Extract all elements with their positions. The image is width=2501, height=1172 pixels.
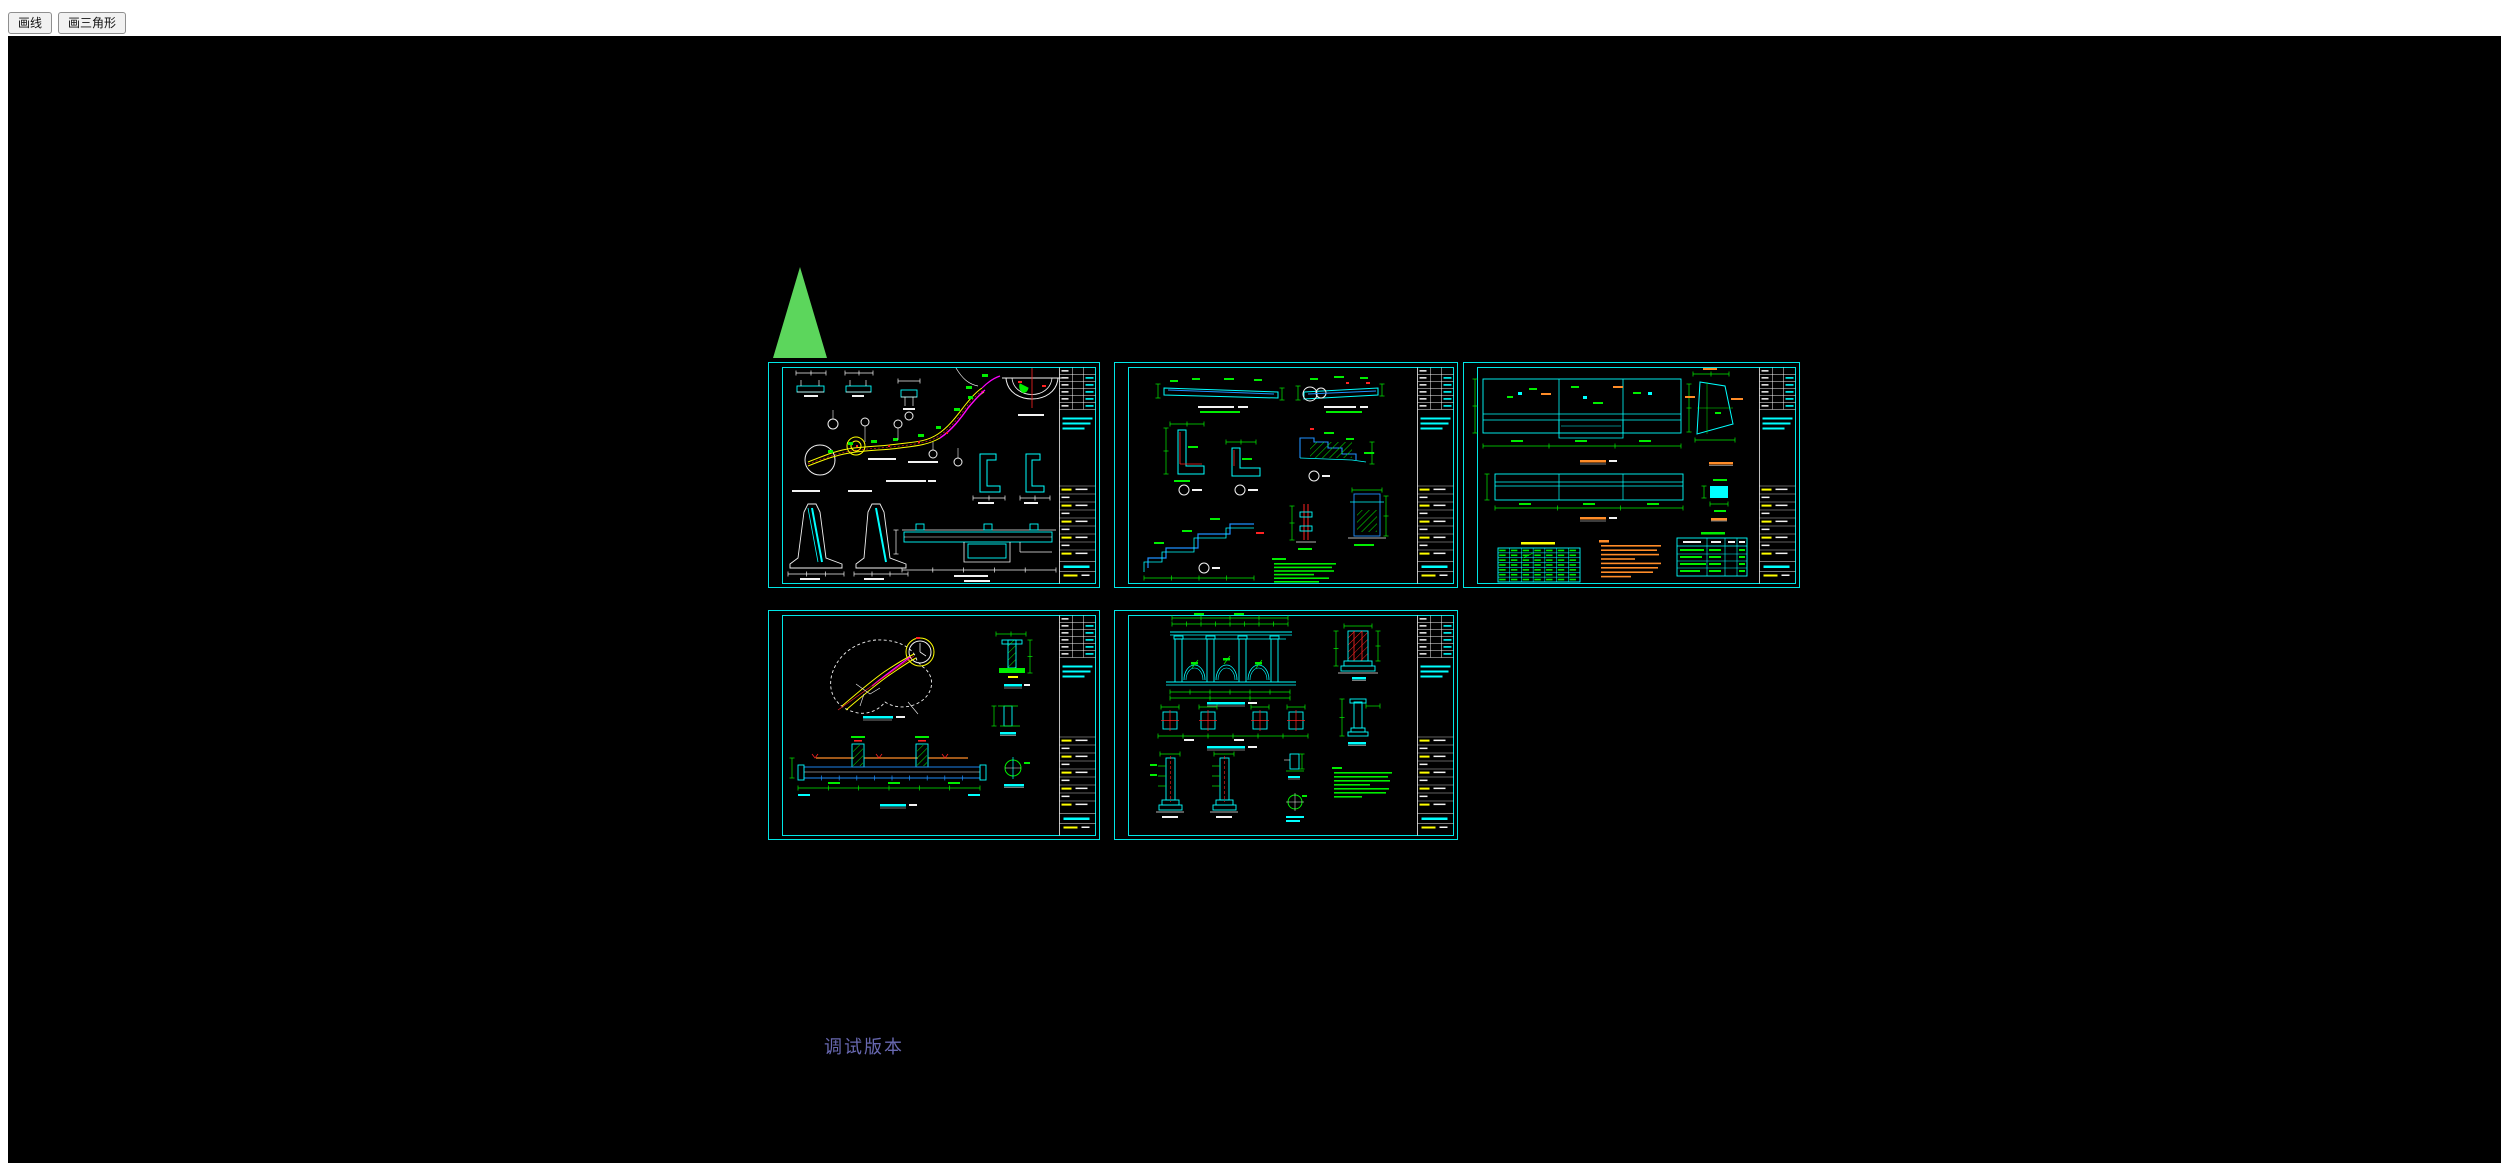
sheet-border [769,611,1100,840]
title-block [1060,616,1096,836]
toolbar: 画线 画三角形 [0,0,2501,36]
title-block [1418,616,1454,836]
draw-triangle-button[interactable]: 画三角形 [58,12,126,34]
cad-sheet-3 [1463,362,1800,588]
drawing-canvas[interactable] [8,36,2501,1163]
cad-sheet-5 [1114,610,1458,840]
title-block [1760,368,1796,584]
drawing-content [1144,376,1389,583]
sheet-border [1464,363,1800,588]
draw-line-button[interactable]: 画线 [8,12,52,34]
drawing-content [790,632,1033,809]
cad-sheet-2 [1114,362,1458,588]
drawing-content [788,368,1062,582]
page: 画线 画三角形 调试版本 [0,0,2501,1172]
title-block [1060,368,1096,584]
green-triangle [762,263,832,363]
debug-version-label: 调试版本 [824,1033,904,1059]
drawing-content [1473,368,1748,582]
cad-sheet-4 [768,610,1100,840]
drawing-content [1150,613,1392,822]
title-block [1418,368,1454,584]
cad-sheet-1 [768,362,1100,588]
